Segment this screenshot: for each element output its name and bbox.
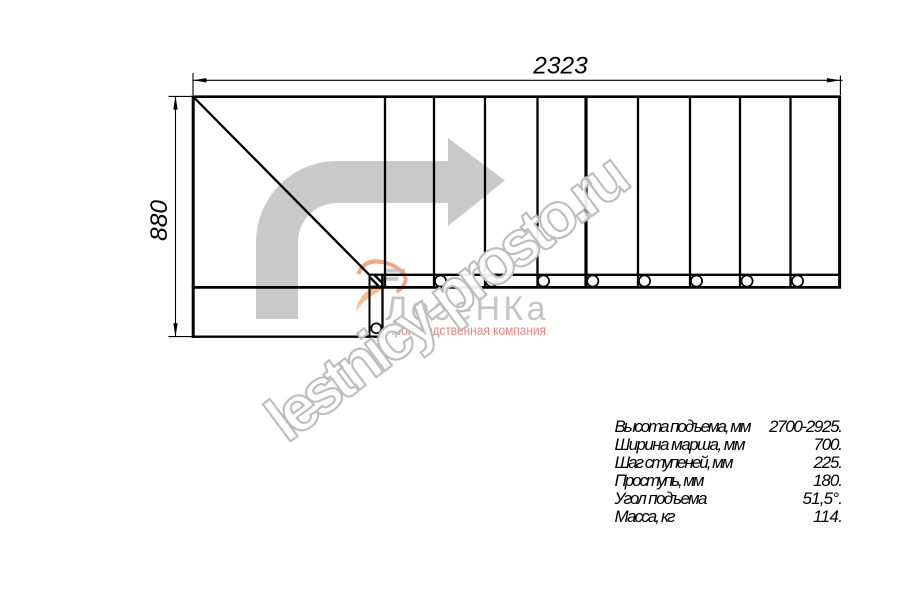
svg-text:700.: 700. [814, 435, 844, 454]
svg-text:Шаг ступеней, мм: Шаг ступеней, мм [615, 453, 734, 472]
svg-text:2323: 2323 [532, 53, 588, 80]
svg-text:225.: 225. [813, 453, 844, 472]
svg-text:Проступь, мм: Проступь, мм [615, 471, 705, 490]
svg-text:2700-2925.: 2700-2925. [768, 417, 843, 436]
svg-text:880: 880 [146, 200, 173, 241]
svg-text:Ширина марша, мм: Ширина марша, мм [615, 435, 746, 454]
svg-text:114.: 114. [813, 507, 843, 526]
svg-text:51,5°.: 51,5°. [803, 489, 844, 508]
svg-text:180.: 180. [813, 471, 843, 490]
svg-text:Масса, кг: Масса, кг [615, 507, 676, 526]
svg-text:Высота подъема, мм: Высота подъема, мм [615, 417, 752, 436]
svg-text:Угол подъема: Угол подъема [614, 489, 708, 508]
